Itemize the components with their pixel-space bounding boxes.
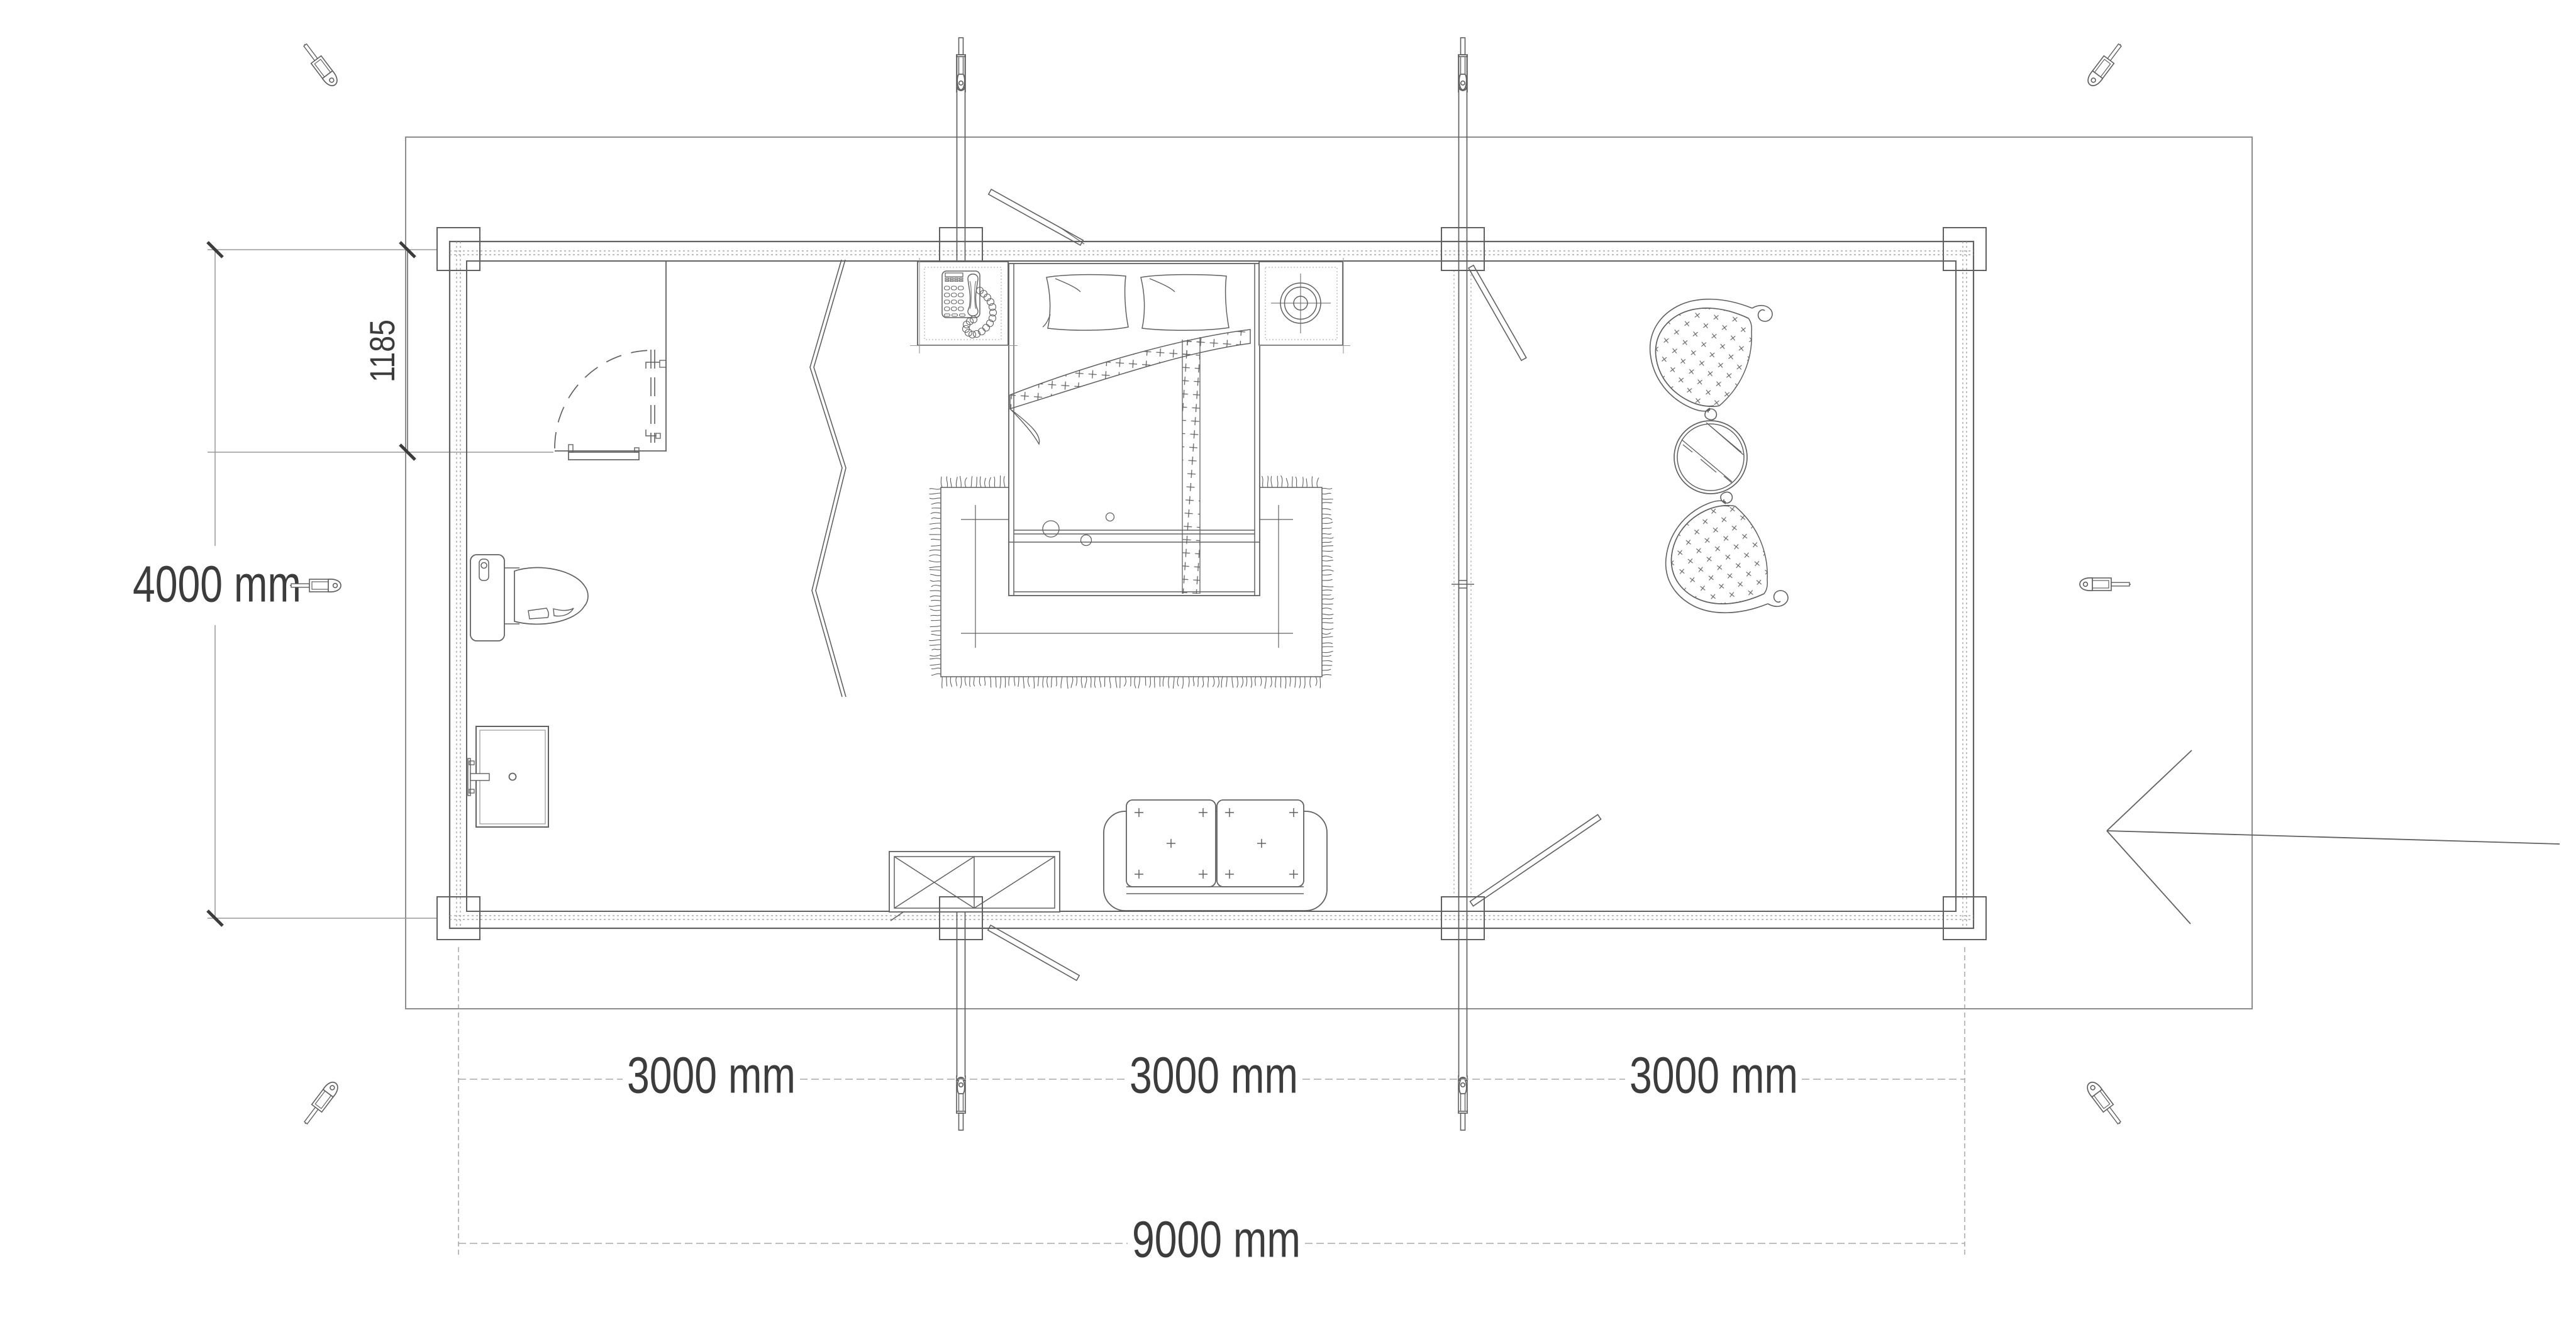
svg-text:9000 mm: 9000 mm xyxy=(1132,1211,1301,1269)
svg-text:4000 mm: 4000 mm xyxy=(133,556,301,613)
svg-text:1185: 1185 xyxy=(362,319,402,382)
svg-text:3000 mm: 3000 mm xyxy=(627,1047,796,1104)
svg-text:3000 mm: 3000 mm xyxy=(1130,1047,1298,1104)
svg-text:3000 mm: 3000 mm xyxy=(1629,1047,1798,1104)
